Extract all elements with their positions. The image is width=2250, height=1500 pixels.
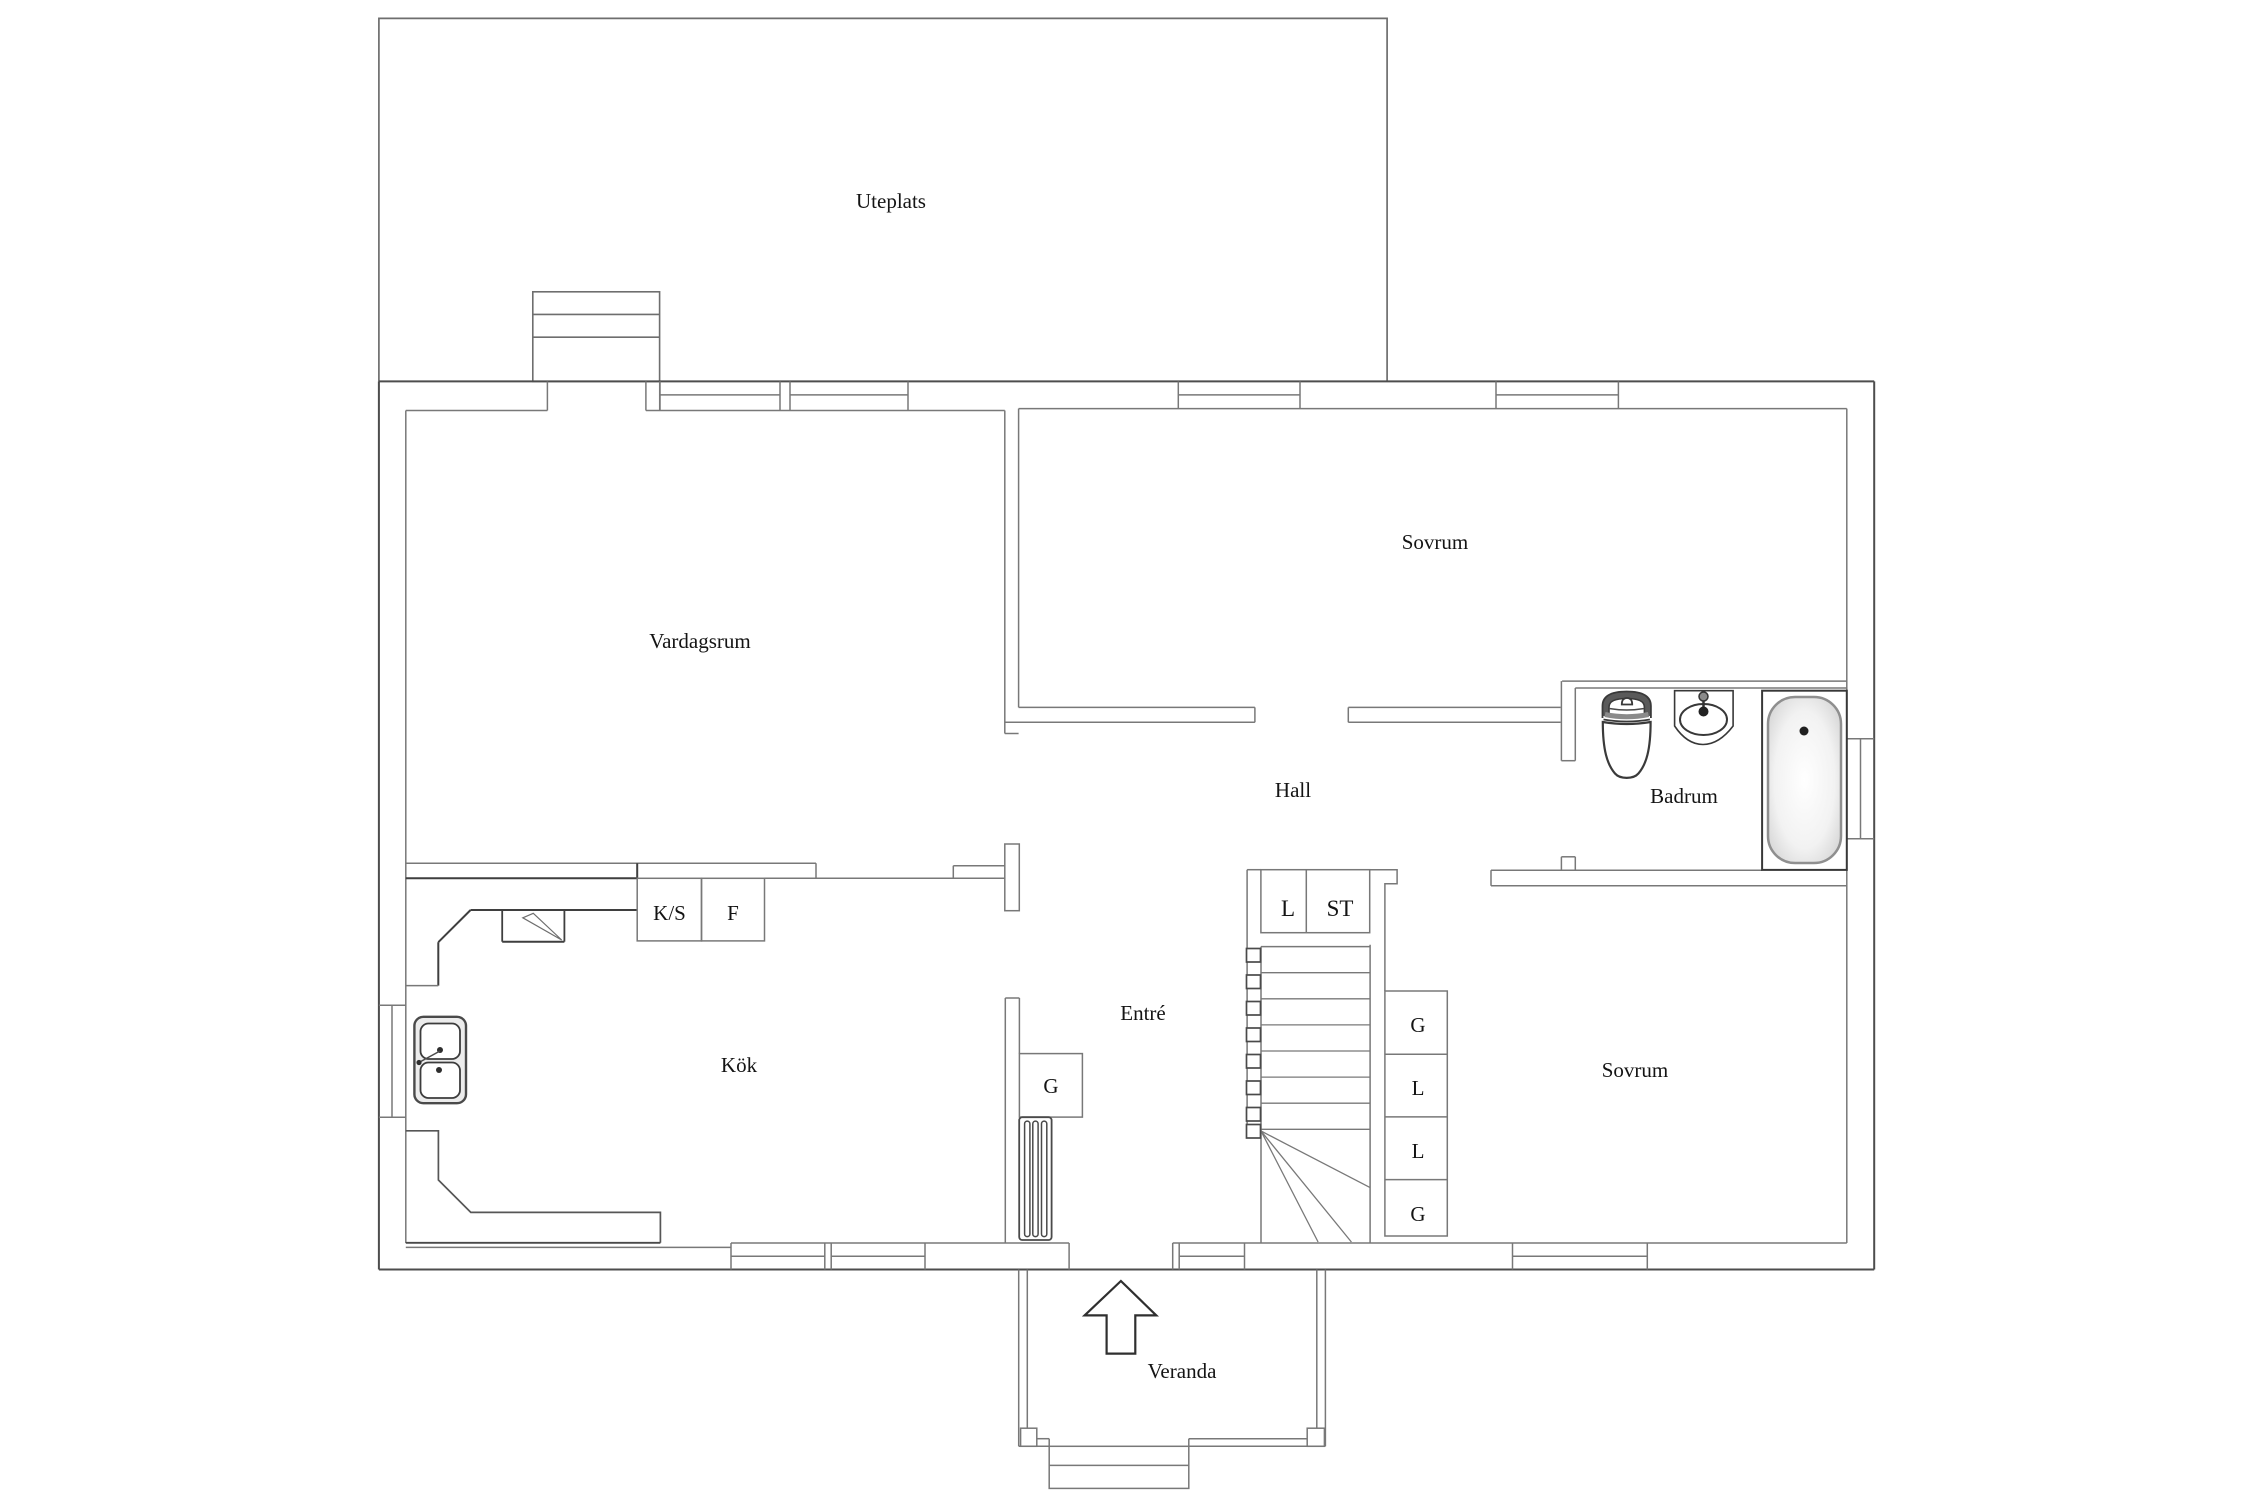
svg-text:G: G	[1410, 1202, 1425, 1226]
svg-text:Uteplats: Uteplats	[856, 189, 926, 213]
svg-text:L: L	[1412, 1076, 1425, 1100]
svg-text:ST: ST	[1327, 896, 1354, 921]
svg-text:K/S: K/S	[653, 901, 686, 925]
svg-text:L: L	[1412, 1139, 1425, 1163]
svg-text:Sovrum: Sovrum	[1602, 1058, 1669, 1082]
svg-text:Veranda: Veranda	[1148, 1359, 1217, 1383]
svg-text:F: F	[727, 901, 739, 925]
svg-text:Hall: Hall	[1275, 778, 1311, 802]
svg-text:G: G	[1410, 1013, 1425, 1037]
svg-text:Sovrum: Sovrum	[1402, 530, 1469, 554]
svg-text:Kök: Kök	[721, 1053, 758, 1077]
svg-text:Badrum: Badrum	[1650, 784, 1718, 808]
svg-text:L: L	[1281, 896, 1295, 921]
svg-text:Entré: Entré	[1120, 1001, 1165, 1025]
svg-text:Vardagsrum: Vardagsrum	[649, 629, 750, 653]
svg-text:G: G	[1043, 1074, 1058, 1098]
